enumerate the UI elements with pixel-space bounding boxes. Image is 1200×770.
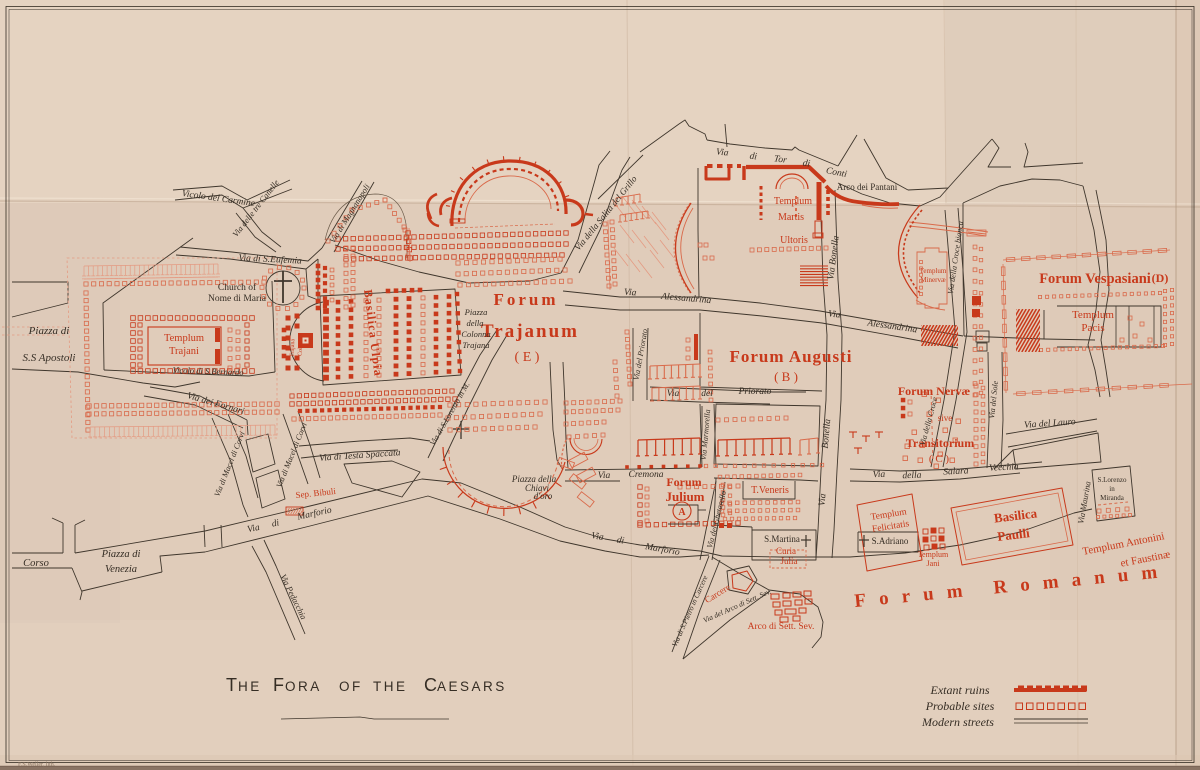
svg-text:Venezia: Venezia: [105, 564, 137, 575]
svg-text:Salara: Salara: [943, 466, 969, 477]
svg-text:( C ): ( C ): [929, 453, 950, 465]
svg-text:Miranda: Miranda: [1100, 494, 1125, 502]
svg-text:Via: Via: [817, 493, 828, 507]
svg-text:Via: Via: [624, 288, 637, 299]
svg-text:Piazza: Piazza: [464, 307, 488, 317]
svg-text:Templum: Templum: [918, 550, 949, 559]
svg-text:Priorato: Priorato: [738, 387, 772, 397]
svg-text:Templum: Templum: [164, 333, 204, 344]
svg-text:Arco dei Pantani: Arco dei Pantani: [837, 182, 898, 192]
svg-text:Via: Via: [873, 470, 886, 480]
svg-text:T: T: [226, 675, 237, 695]
svg-text:Probable sites: Probable sites: [925, 699, 995, 713]
svg-text:Piazza di: Piazza di: [101, 549, 141, 560]
svg-text:(D): (D): [1152, 271, 1169, 285]
svg-text:( B ): ( B ): [774, 369, 798, 384]
svg-text:Corso: Corso: [23, 558, 49, 569]
svg-text:Pacis: Pacis: [1081, 322, 1104, 334]
svg-text:Church of: Church of: [218, 282, 257, 293]
svg-text:Transitorium: Transitorium: [906, 436, 974, 450]
svg-text:Julia: Julia: [781, 556, 798, 566]
svg-text:C: C: [424, 675, 437, 695]
svg-text:A: A: [678, 507, 686, 518]
svg-text:sive: sive: [938, 413, 953, 423]
svg-text:Trajana: Trajana: [290, 338, 297, 357]
svg-text:Cremona: Cremona: [628, 470, 663, 480]
svg-text:in: in: [1109, 485, 1115, 493]
svg-text:della: della: [902, 471, 922, 482]
svg-text:Templum: Templum: [774, 196, 812, 207]
svg-text:Forum: Forum: [493, 290, 558, 309]
svg-text:Martis: Martis: [778, 212, 804, 223]
svg-text:AESARS: AESARS: [437, 679, 507, 694]
svg-text:Modern streets: Modern streets: [921, 715, 994, 729]
svg-text:Via: Via: [598, 471, 611, 481]
svg-text:Arco di Sett. Sev.: Arco di Sett. Sev.: [748, 622, 815, 632]
svg-text:Colonna: Colonna: [461, 329, 490, 339]
svg-text:Vecchia: Vecchia: [989, 462, 1019, 474]
svg-text:Templum: Templum: [1072, 309, 1114, 321]
svg-text:Julium: Julium: [665, 489, 704, 504]
svg-text:T.Veneris: T.Veneris: [751, 485, 789, 496]
svg-text:Nome di Maria: Nome di Maria: [208, 294, 267, 304]
svg-text:Via: Via: [715, 147, 729, 158]
svg-text:Jani: Jani: [927, 559, 941, 568]
svg-text:F: F: [273, 675, 284, 695]
svg-text:Via: Via: [827, 309, 841, 320]
svg-text:F.S.Weller, lith.: F.S.Weller, lith.: [18, 762, 56, 768]
svg-text:HE: HE: [238, 679, 262, 694]
svg-text:Templum: Templum: [920, 267, 947, 275]
svg-text:del: del: [701, 389, 713, 399]
svg-text:S.Martina: S.Martina: [764, 534, 800, 544]
svg-text:della: della: [467, 318, 484, 328]
svg-text:Via: Via: [590, 531, 604, 543]
svg-text:( E ): ( E ): [515, 350, 540, 365]
svg-text:S.Adriano: S.Adriano: [872, 536, 909, 546]
svg-text:S.Lorenzo: S.Lorenzo: [1098, 476, 1127, 484]
svg-text:Minervæ: Minervæ: [920, 276, 946, 284]
svg-text:Forum: Forum: [666, 475, 701, 489]
svg-text:Forum Augusti: Forum Augusti: [729, 347, 852, 366]
svg-text:THE: THE: [373, 679, 408, 694]
svg-text:Tor: Tor: [773, 154, 787, 166]
svg-text:OF: OF: [339, 679, 363, 694]
svg-text:Columna: Columna: [298, 334, 305, 357]
svg-text:Ultoris: Ultoris: [780, 235, 808, 246]
svg-text:Curia: Curia: [776, 546, 796, 556]
svg-text:Trajana: Trajana: [463, 340, 490, 350]
svg-text:Forum Nervæ: Forum Nervæ: [898, 384, 971, 398]
svg-text:d'oro: d'oro: [534, 491, 553, 501]
svg-text:Via: Via: [667, 389, 680, 399]
svg-text:Forum Vespasiani: Forum Vespasiani: [1039, 271, 1151, 287]
svg-text:ORA: ORA: [285, 679, 322, 694]
svg-text:Extant ruins: Extant ruins: [930, 683, 990, 697]
svg-text:S.S Apostoli: S.S Apostoli: [23, 352, 76, 364]
svg-text:Piazza di: Piazza di: [28, 325, 70, 337]
svg-text:Trajanum: Trajanum: [481, 321, 579, 342]
svg-text:Trajani: Trajani: [169, 346, 199, 357]
